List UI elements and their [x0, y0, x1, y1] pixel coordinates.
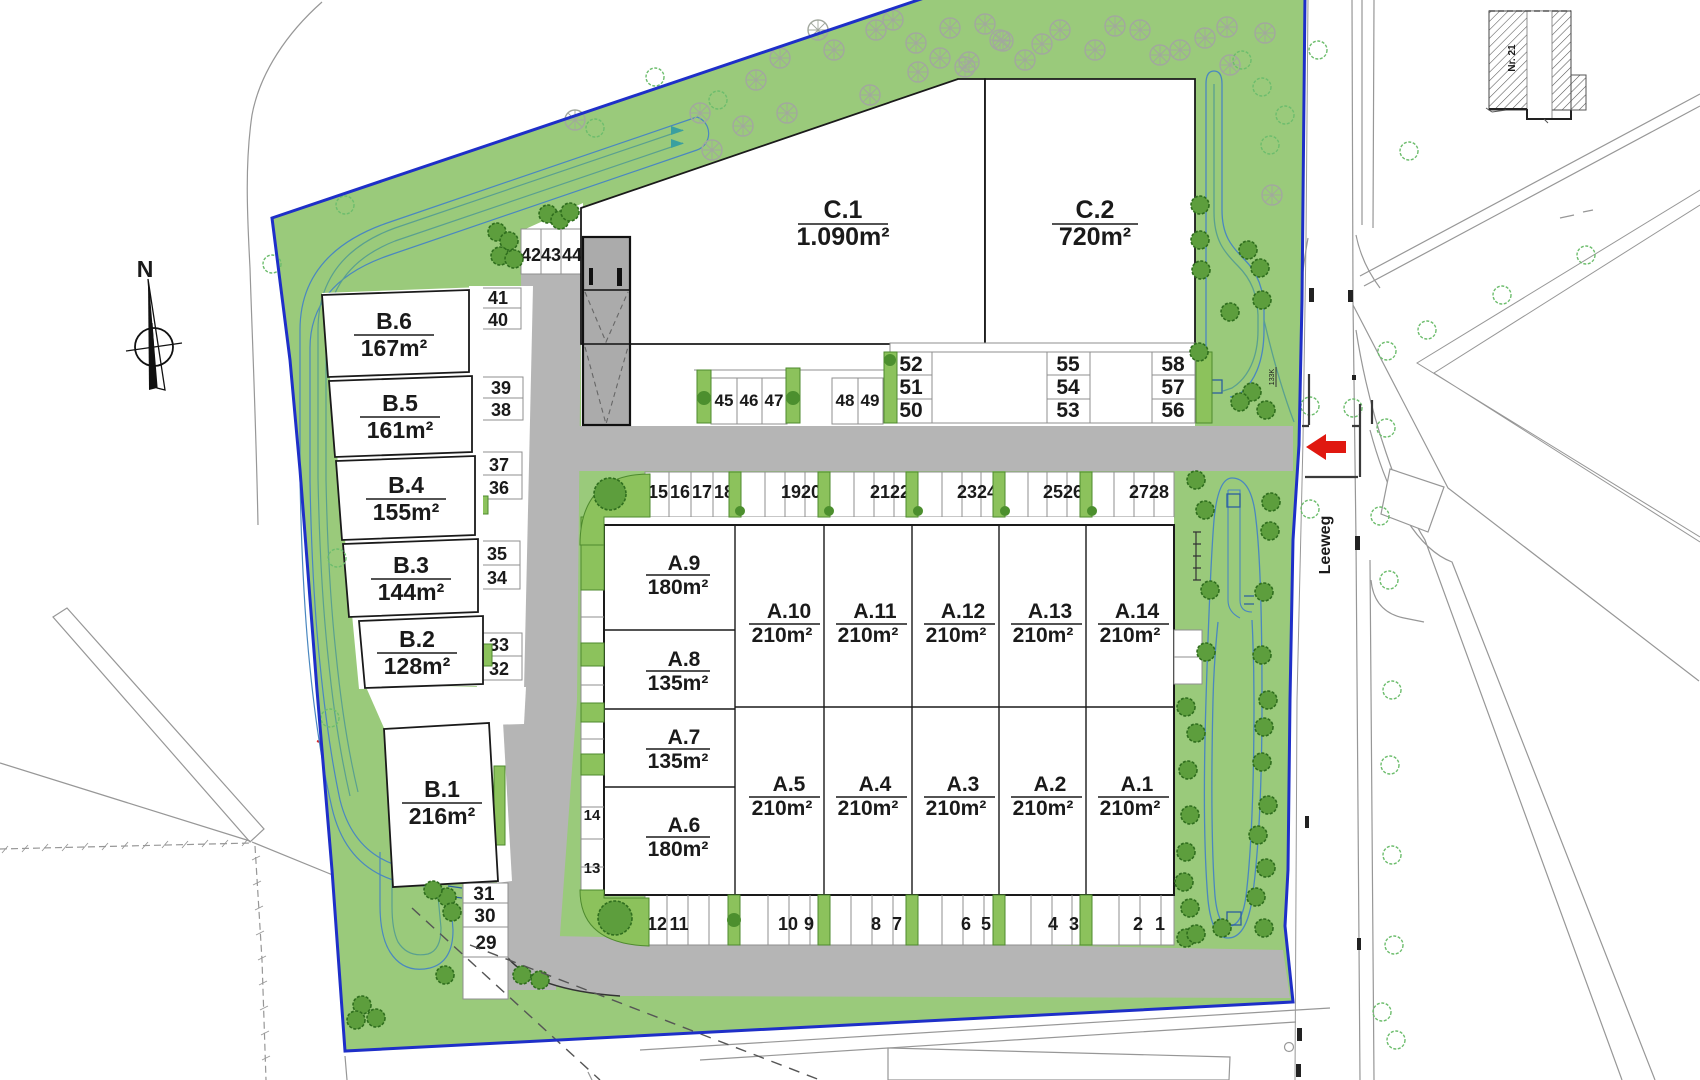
svg-text:133K: 133K [1269, 369, 1276, 386]
svg-text:21: 21 [870, 482, 890, 502]
svg-text:17: 17 [692, 482, 712, 502]
svg-text:31: 31 [473, 884, 495, 905]
svg-text:210m²: 210m² [838, 624, 899, 647]
svg-text:210m²: 210m² [752, 624, 813, 647]
svg-text:2: 2 [1133, 914, 1143, 934]
svg-text:A.9: A.9 [668, 552, 701, 575]
svg-text:155m²: 155m² [373, 499, 440, 525]
svg-text:10: 10 [778, 914, 798, 934]
svg-text:180m²: 180m² [648, 576, 709, 599]
svg-text:A.4: A.4 [859, 773, 892, 796]
svg-text:128m²: 128m² [384, 653, 451, 679]
svg-text:46: 46 [740, 391, 759, 410]
svg-text:51: 51 [899, 376, 923, 399]
svg-text:A.13: A.13 [1028, 600, 1072, 623]
svg-text:B.4: B.4 [388, 472, 424, 498]
svg-text:167m²: 167m² [361, 335, 428, 361]
svg-text:B.1: B.1 [424, 776, 460, 802]
svg-text:49: 49 [861, 391, 880, 410]
svg-text:210m²: 210m² [1013, 797, 1074, 820]
svg-text:29: 29 [475, 933, 496, 954]
svg-text:12: 12 [647, 914, 667, 934]
svg-text:28: 28 [1149, 482, 1169, 502]
svg-text:45: 45 [715, 391, 734, 410]
svg-text:6: 6 [961, 914, 971, 934]
svg-text:210m²: 210m² [926, 624, 987, 647]
svg-text:B.3: B.3 [393, 552, 429, 578]
svg-text:50: 50 [899, 399, 922, 422]
svg-text:11: 11 [669, 914, 688, 934]
svg-text:720m²: 720m² [1059, 223, 1131, 251]
svg-text:40: 40 [488, 310, 508, 330]
svg-text:210m²: 210m² [838, 797, 899, 820]
svg-text:135m²: 135m² [648, 672, 709, 695]
svg-text:B.2: B.2 [399, 626, 435, 652]
svg-text:180m²: 180m² [648, 838, 709, 861]
svg-text:9: 9 [804, 914, 814, 934]
svg-text:38: 38 [491, 400, 511, 420]
svg-text:19: 19 [781, 482, 801, 502]
svg-text:52: 52 [899, 353, 922, 376]
svg-text:47: 47 [765, 391, 784, 410]
svg-text:210m²: 210m² [1100, 797, 1161, 820]
svg-text:56: 56 [1161, 399, 1184, 422]
svg-text:Leeweg: Leeweg [1317, 516, 1334, 575]
svg-text:A.8: A.8 [668, 648, 701, 671]
svg-text:54: 54 [1056, 376, 1080, 399]
svg-text:C.2: C.2 [1076, 196, 1115, 224]
svg-text:53: 53 [1056, 399, 1079, 422]
svg-text:30: 30 [474, 906, 495, 927]
svg-text:34: 34 [487, 568, 507, 588]
svg-text:43: 43 [541, 245, 561, 265]
svg-text:Nr. 21: Nr. 21 [1507, 44, 1518, 72]
svg-text:15: 15 [648, 482, 668, 502]
svg-text:1: 1 [1155, 914, 1165, 934]
svg-text:A.2: A.2 [1034, 773, 1067, 796]
svg-text:23: 23 [957, 482, 977, 502]
svg-text:35: 35 [487, 544, 507, 564]
svg-text:48: 48 [836, 391, 855, 410]
svg-text:42: 42 [521, 245, 541, 265]
svg-text:44: 44 [562, 245, 582, 265]
svg-text:A.1: A.1 [1121, 773, 1154, 796]
svg-text:3: 3 [1069, 914, 1079, 934]
svg-text:39: 39 [491, 378, 511, 398]
svg-text:210m²: 210m² [752, 797, 813, 820]
svg-text:210m²: 210m² [926, 797, 987, 820]
svg-text:41: 41 [488, 288, 508, 308]
svg-text:36: 36 [489, 478, 509, 498]
svg-text:C.1: C.1 [824, 196, 863, 224]
svg-text:B.5: B.5 [382, 390, 418, 416]
svg-text:37: 37 [489, 455, 509, 475]
svg-text:A.3: A.3 [947, 773, 980, 796]
svg-text:57: 57 [1161, 376, 1184, 399]
svg-text:7: 7 [892, 914, 902, 934]
svg-text:210m²: 210m² [1100, 624, 1161, 647]
svg-text:5: 5 [981, 914, 991, 934]
svg-text:N: N [137, 256, 154, 282]
svg-text:58: 58 [1161, 353, 1185, 376]
svg-text:A.7: A.7 [668, 726, 701, 749]
svg-text:13: 13 [584, 860, 601, 877]
svg-text:14: 14 [584, 807, 601, 824]
svg-text:55: 55 [1056, 353, 1080, 376]
svg-text:8: 8 [871, 914, 881, 934]
svg-text:A.11: A.11 [853, 600, 897, 623]
svg-text:A.14: A.14 [1115, 600, 1160, 623]
svg-text:A.12: A.12 [941, 600, 985, 623]
svg-text:1.090m²: 1.090m² [796, 223, 889, 251]
svg-text:A.5: A.5 [773, 773, 806, 796]
svg-text:27: 27 [1129, 482, 1149, 502]
svg-text:135m²: 135m² [648, 750, 709, 773]
svg-text:144m²: 144m² [378, 579, 445, 605]
svg-text:216m²: 216m² [409, 803, 476, 829]
svg-text:B.6: B.6 [376, 308, 412, 334]
svg-text:210m²: 210m² [1013, 624, 1074, 647]
svg-text:A.10: A.10 [767, 600, 811, 623]
svg-text:16: 16 [670, 482, 690, 502]
svg-text:4: 4 [1048, 914, 1058, 934]
svg-text:A.6: A.6 [668, 814, 701, 837]
svg-text:161m²: 161m² [367, 417, 434, 443]
svg-text:25: 25 [1043, 482, 1063, 502]
